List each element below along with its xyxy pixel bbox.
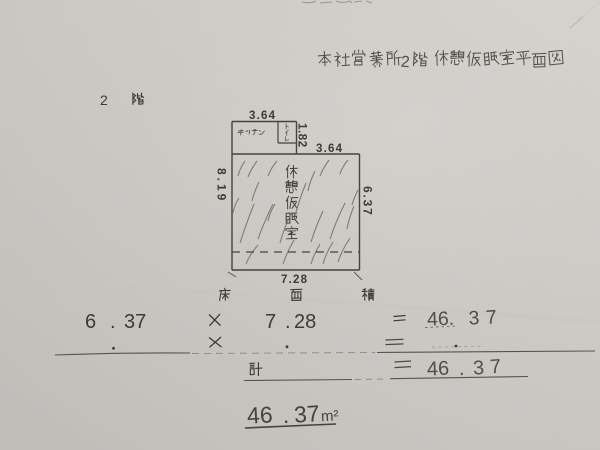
- svg-text:8.19: 8.19: [215, 168, 229, 203]
- svg-text:.: .: [283, 402, 289, 428]
- svg-text:7: 7: [485, 306, 497, 329]
- svg-text:7.28: 7.28: [281, 274, 308, 286]
- svg-text:.: .: [110, 311, 116, 333]
- svg-text:2: 2: [100, 92, 108, 108]
- svg-text:37: 37: [124, 311, 146, 333]
- svg-text:1.82: 1.82: [296, 123, 308, 148]
- svg-text:2: 2: [400, 54, 410, 72]
- svg-text:46: 46: [246, 401, 273, 428]
- svg-text:.: .: [285, 311, 291, 333]
- svg-text:46: 46: [427, 358, 450, 381]
- svg-text:6.37: 6.37: [361, 186, 375, 217]
- svg-text:3: 3: [468, 307, 480, 330]
- svg-text:3.64: 3.64: [316, 143, 343, 155]
- svg-text:3.64: 3.64: [249, 110, 276, 122]
- svg-text:6: 6: [85, 311, 96, 333]
- svg-text:.: .: [459, 358, 465, 380]
- svg-text:7: 7: [265, 311, 276, 333]
- svg-text:7: 7: [489, 356, 502, 379]
- svg-text:3: 3: [472, 357, 484, 380]
- svg-text:28: 28: [294, 311, 316, 333]
- svg-text:m²: m²: [321, 407, 339, 425]
- svg-text:37: 37: [293, 400, 320, 428]
